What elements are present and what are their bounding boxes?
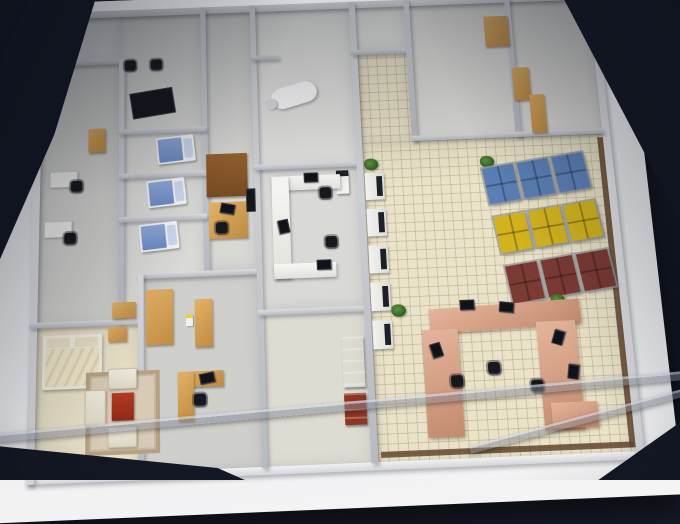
floor-plan [26, 0, 646, 485]
patient-bed [155, 134, 195, 165]
monitor [499, 301, 514, 313]
office-chair [151, 59, 162, 70]
scale-model-scene [26, 0, 646, 485]
armchair [108, 368, 137, 390]
patient-bed [146, 177, 187, 208]
figurine-person [186, 314, 193, 327]
office-chair [64, 233, 76, 244]
self-service-kiosk [370, 282, 391, 311]
office-desk-return [178, 371, 195, 421]
office-chair [216, 222, 228, 233]
office-chair [71, 181, 83, 192]
top-strip-room-floor [349, 6, 407, 51]
self-service-kiosk [366, 208, 387, 236]
self-service-kiosk [365, 172, 386, 200]
office-chair [325, 236, 337, 248]
office-chair [451, 375, 464, 387]
wood-cabinet [88, 128, 105, 152]
wardrobe [146, 289, 174, 345]
office-chair [319, 187, 331, 198]
tall-cabinet [195, 299, 213, 347]
coffee-table [112, 392, 134, 421]
self-service-kiosk [368, 245, 389, 274]
monitor [304, 172, 319, 182]
wood-table [206, 153, 248, 197]
wall [118, 59, 125, 323]
monitor [567, 364, 579, 380]
loveseat [84, 390, 105, 426]
office-chair [488, 362, 501, 374]
patient-bed [138, 221, 179, 253]
upper-hall-tile-floor [357, 48, 412, 143]
monitor [219, 203, 235, 215]
monitor [317, 259, 332, 270]
self-service-kiosk [372, 320, 393, 350]
tv-panel [246, 188, 256, 212]
nightstand [108, 327, 127, 342]
bookshelf [483, 16, 509, 47]
office-chair [125, 60, 136, 71]
office-chair [194, 393, 206, 405]
vending-cabinet [341, 336, 365, 387]
monitor [459, 299, 474, 310]
wall [251, 55, 279, 61]
dresser [112, 302, 136, 319]
